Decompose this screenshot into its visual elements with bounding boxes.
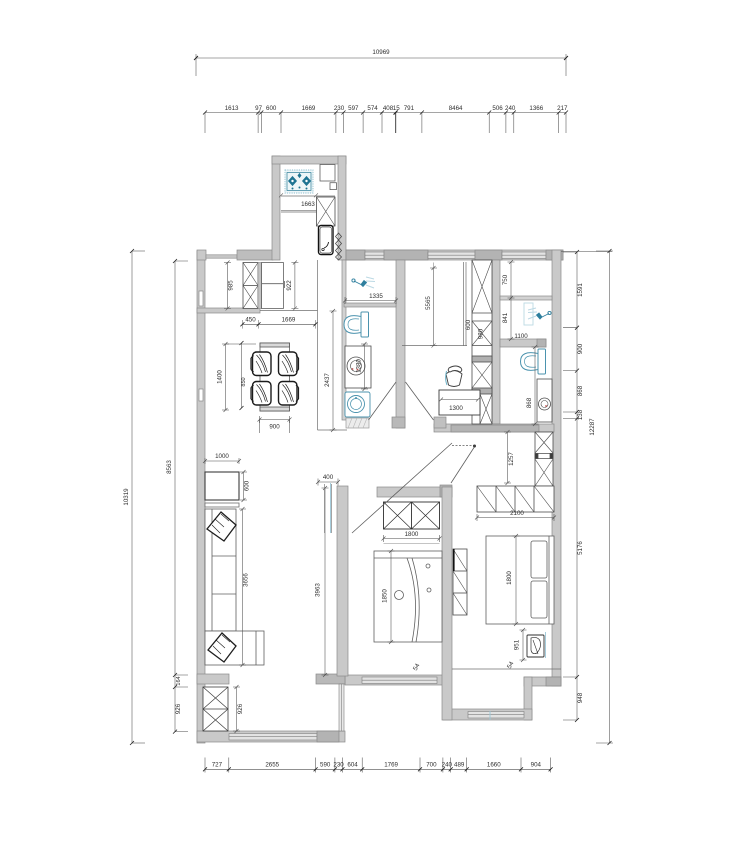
svg-text:97: 97	[255, 105, 262, 112]
svg-text:1335: 1335	[369, 293, 383, 300]
svg-text:600: 600	[244, 480, 251, 491]
svg-text:217: 217	[557, 105, 568, 112]
svg-text:230: 230	[333, 762, 344, 769]
svg-text:791: 791	[404, 105, 415, 112]
svg-text:15: 15	[393, 105, 400, 112]
svg-text:980: 980	[478, 328, 485, 339]
svg-text:590: 590	[320, 762, 331, 769]
svg-text:12287: 12287	[589, 418, 596, 436]
svg-text:5565: 5565	[425, 296, 432, 310]
svg-text:3656: 3656	[243, 573, 250, 587]
svg-text:868: 868	[577, 385, 584, 396]
svg-text:1613: 1613	[225, 105, 239, 112]
svg-text:1669: 1669	[282, 317, 296, 324]
svg-text:10319: 10319	[123, 488, 130, 506]
svg-text:604: 604	[347, 762, 358, 769]
svg-text:506: 506	[492, 105, 503, 112]
svg-text:1591: 1591	[577, 283, 584, 297]
svg-text:164: 164	[176, 676, 182, 685]
svg-text:1769: 1769	[384, 762, 398, 769]
svg-text:868: 868	[526, 397, 533, 408]
svg-text:922: 922	[286, 280, 293, 291]
svg-text:2437: 2437	[324, 373, 331, 387]
svg-text:8563: 8563	[166, 460, 173, 474]
svg-text:2100: 2100	[510, 510, 524, 517]
svg-text:948: 948	[577, 692, 584, 703]
svg-text:597: 597	[348, 105, 359, 112]
svg-text:10969: 10969	[372, 49, 390, 56]
svg-text:1800: 1800	[506, 571, 513, 585]
svg-text:951: 951	[514, 639, 521, 650]
svg-text:450: 450	[245, 317, 256, 324]
svg-text:1366: 1366	[529, 105, 543, 112]
svg-text:2655: 2655	[265, 762, 279, 769]
svg-text:1257: 1257	[508, 452, 515, 466]
svg-text:489: 489	[454, 762, 465, 769]
svg-text:985: 985	[228, 280, 235, 291]
svg-text:700: 700	[426, 762, 437, 769]
svg-text:900: 900	[577, 343, 584, 354]
svg-text:900: 900	[269, 424, 280, 431]
svg-text:841: 841	[502, 312, 509, 323]
svg-text:1380: 1380	[356, 359, 363, 373]
svg-text:3963: 3963	[315, 583, 322, 597]
svg-text:5176: 5176	[577, 541, 584, 555]
svg-text:750: 750	[502, 274, 509, 285]
svg-text:1663: 1663	[301, 201, 315, 208]
svg-text:727: 727	[212, 762, 223, 769]
svg-text:230: 230	[334, 105, 345, 112]
svg-text:1660: 1660	[487, 762, 501, 769]
svg-text:904: 904	[531, 762, 542, 769]
svg-text:240: 240	[442, 762, 453, 769]
svg-text:1000: 1000	[215, 453, 229, 460]
svg-text:600: 600	[266, 105, 277, 112]
svg-text:1100: 1100	[514, 333, 528, 340]
svg-text:1669: 1669	[302, 105, 316, 112]
svg-text:1400: 1400	[217, 370, 224, 384]
svg-text:138: 138	[577, 409, 584, 420]
svg-text:926: 926	[175, 703, 182, 714]
svg-text:1850: 1850	[382, 589, 389, 603]
svg-text:8464: 8464	[449, 105, 463, 112]
svg-text:574: 574	[367, 105, 378, 112]
svg-text:1800: 1800	[405, 531, 419, 538]
svg-text:926: 926	[237, 703, 244, 714]
svg-text:850: 850	[241, 377, 247, 386]
svg-text:600: 600	[465, 319, 472, 330]
svg-text:1300: 1300	[449, 405, 463, 412]
svg-text:240: 240	[505, 105, 516, 112]
svg-text:400: 400	[323, 474, 334, 481]
